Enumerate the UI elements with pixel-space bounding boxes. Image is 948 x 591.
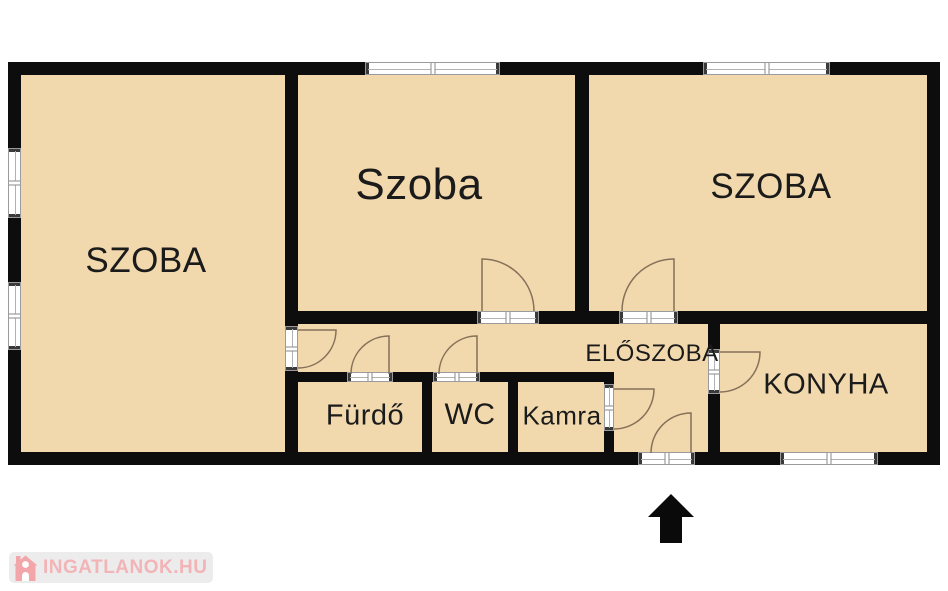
door-furdo [351,336,389,374]
floor-plan: SZOBA Szoba SZOBA ELŐSZOBA KONYHA Fürdő … [0,0,948,591]
entrance-arrow-icon [648,494,694,543]
watermark-badge: INGATLANOK.HU [9,552,213,583]
house-icon [13,555,38,581]
door-middle-szoba [482,259,534,311]
entrance-door [651,413,691,453]
room-label-kamra: Kamra [522,401,601,432]
floor-plan-image: SZOBA Szoba SZOBA ELŐSZOBA KONYHA Fürdő … [0,0,948,591]
room-label-konyha: KONYHA [763,369,888,402]
door-konyha [720,352,760,392]
watermark-text: INGATLANOK.HU [43,557,207,579]
room-label-szoba-right: SZOBA [710,167,831,207]
door-wc [439,336,477,374]
room-label-szoba-middle: Szoba [355,160,482,210]
room-label-wc: WC [445,398,496,432]
door-right-szoba [622,259,674,311]
door-swings-overlay [0,0,948,591]
room-label-eloszoba: ELŐSZOBA [585,340,718,368]
door-left-szoba [298,330,336,368]
room-label-furdo: Fürdő [326,400,404,433]
door-kamra [614,389,654,429]
room-label-szoba-left: SZOBA [85,241,206,281]
